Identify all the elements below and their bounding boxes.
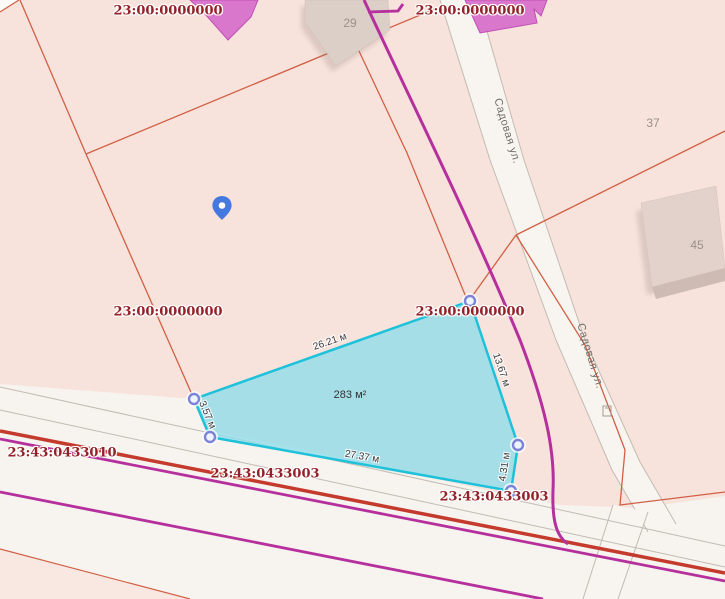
vertex-handle[interactable] [510, 437, 526, 453]
map-canvas[interactable] [0, 0, 725, 599]
vertex-handle[interactable] [462, 293, 478, 309]
cadastral-map-viewport[interactable]: 23:00:0000000 23:00:0000000 23:00:000000… [0, 0, 725, 599]
vertex-handle[interactable] [202, 429, 218, 445]
vertex-handle[interactable] [186, 391, 202, 407]
building-45[interactable] [636, 186, 725, 299]
vertex-handle[interactable] [503, 483, 519, 499]
